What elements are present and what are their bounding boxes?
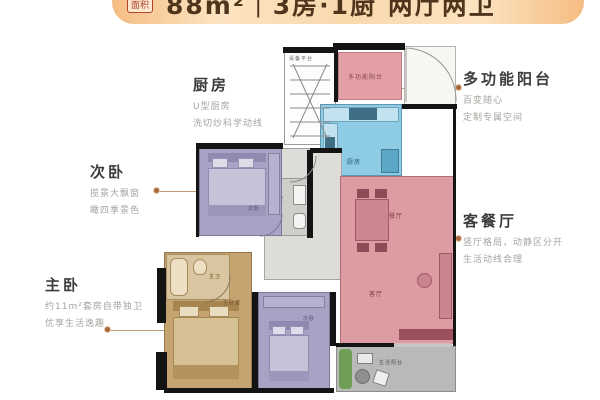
room-label-master-bath: 主卫 [209, 273, 221, 280]
wall [252, 292, 258, 390]
room-second-bedroom: 次卧 [199, 148, 282, 236]
wall [283, 47, 336, 53]
leader-dot [456, 236, 461, 241]
dining-chair [357, 189, 369, 198]
leader-dot [154, 188, 159, 193]
callout-multi-balcony-line: 百变随心 [463, 93, 553, 106]
wall [334, 50, 338, 102]
stove-icon [349, 108, 377, 120]
pillow-icon [238, 158, 254, 168]
room-multi-balcony: 多功能阳台 [338, 52, 402, 100]
callout-kitchen-title: 厨房 [193, 74, 263, 95]
tv-cabinet-icon [399, 329, 453, 340]
basket-icon [372, 369, 390, 387]
leader-dot [105, 327, 110, 332]
coffee-table-icon [417, 273, 432, 288]
fridge-icon [381, 149, 399, 173]
callout-living-dining-title: 客餐厅 [463, 210, 563, 231]
room-life-balcony: 生活阳台 [336, 346, 456, 392]
area-badge: 面积 [127, 0, 153, 13]
dining-chair [357, 243, 369, 252]
room-label-living: 客厅 [369, 289, 383, 298]
toilet-icon [293, 213, 306, 229]
room-label-master-bedroom: 主卧室 [223, 299, 241, 306]
wall [330, 292, 336, 346]
wall [307, 150, 313, 238]
page-title: 88m²｜3房·1厨 两厅两卫 [166, 0, 496, 22]
callout-second-bedroom-title: 次卧 [90, 161, 140, 182]
callout-master-bedroom-line: 优享生活逸趣 [45, 316, 143, 329]
leader-dot [456, 85, 461, 90]
callout-second-bedroom-line: 揽景大飘窗 [90, 186, 140, 199]
callout-multi-balcony-title: 多功能阳台 [463, 68, 553, 89]
room-third-bedroom: 次卧 [258, 292, 330, 390]
washer-icon [355, 369, 370, 384]
wall [453, 108, 456, 346]
room-label-life-balcony: 生活阳台 [379, 359, 403, 366]
wall [197, 143, 283, 149]
bathtub-icon [170, 258, 188, 296]
callout-living-dining-line: 竖厅格局，动静区分开 [463, 235, 563, 248]
room-label-dining: 餐厅 [389, 211, 403, 220]
plant-icon [339, 349, 352, 389]
room-label-second-bedroom: 次卧 [248, 205, 260, 212]
wall [336, 343, 394, 347]
entry-deck [404, 46, 456, 107]
bed-foot [269, 371, 309, 381]
dining-table [355, 199, 389, 241]
toilet-icon [193, 259, 207, 275]
room-label-equipment-platform: 设备平台 [289, 55, 313, 62]
dining-chair [375, 189, 387, 198]
wardrobe-icon [268, 153, 280, 215]
title-banner: 面积 88m²｜3房·1厨 两厅两卫 [112, 0, 584, 24]
wall [333, 43, 405, 50]
callout-multi-balcony: 多功能阳台 百变随心 定制专属空间 [463, 68, 553, 123]
wardrobe-icon [263, 296, 325, 308]
pillow-icon [272, 326, 286, 335]
dining-chair [375, 243, 387, 252]
pillow-icon [290, 326, 304, 335]
callout-second-bedroom: 次卧 揽景大飘窗 瞰四季景色 [90, 161, 140, 216]
callout-living-dining-line: 生活动线合理 [463, 252, 563, 265]
callout-master-bedroom: 主卧 约11m²套房自带独卫 优享生活逸趣 [45, 274, 143, 329]
room-master-bath: 主卫 [166, 254, 230, 300]
wall [156, 352, 167, 390]
pillow-icon [212, 158, 228, 168]
shelf-icon [357, 353, 373, 364]
wall [402, 104, 457, 109]
room-label-multi-balcony: 多功能阳台 [348, 72, 383, 81]
callout-second-bedroom-line: 瞰四季景色 [90, 203, 140, 216]
wall [196, 143, 199, 237]
room-living-dining: 餐厅 客厅 [340, 176, 455, 344]
pillow-icon [209, 306, 229, 317]
callout-multi-balcony-line: 定制专属空间 [463, 110, 553, 123]
wall [310, 148, 342, 153]
washbasin-icon [293, 185, 306, 205]
callout-master-bedroom-title: 主卧 [45, 274, 143, 295]
sofa-icon [439, 253, 452, 319]
callout-living-dining: 客餐厅 竖厅格局，动静区分开 生活动线合理 [463, 210, 563, 265]
callout-kitchen-line: U型厨房 [193, 99, 263, 112]
pillow-icon [179, 306, 199, 317]
wall [164, 388, 334, 393]
callout-master-bedroom-line: 约11m²套房自带独卫 [45, 299, 143, 312]
wall [157, 268, 166, 323]
bed-foot [173, 365, 239, 379]
room-label-kitchen: 厨房 [347, 157, 361, 166]
callout-kitchen: 厨房 U型厨房 洗切炒科学动线 [193, 74, 263, 129]
callout-kitchen-line: 洗切炒科学动线 [193, 116, 263, 129]
